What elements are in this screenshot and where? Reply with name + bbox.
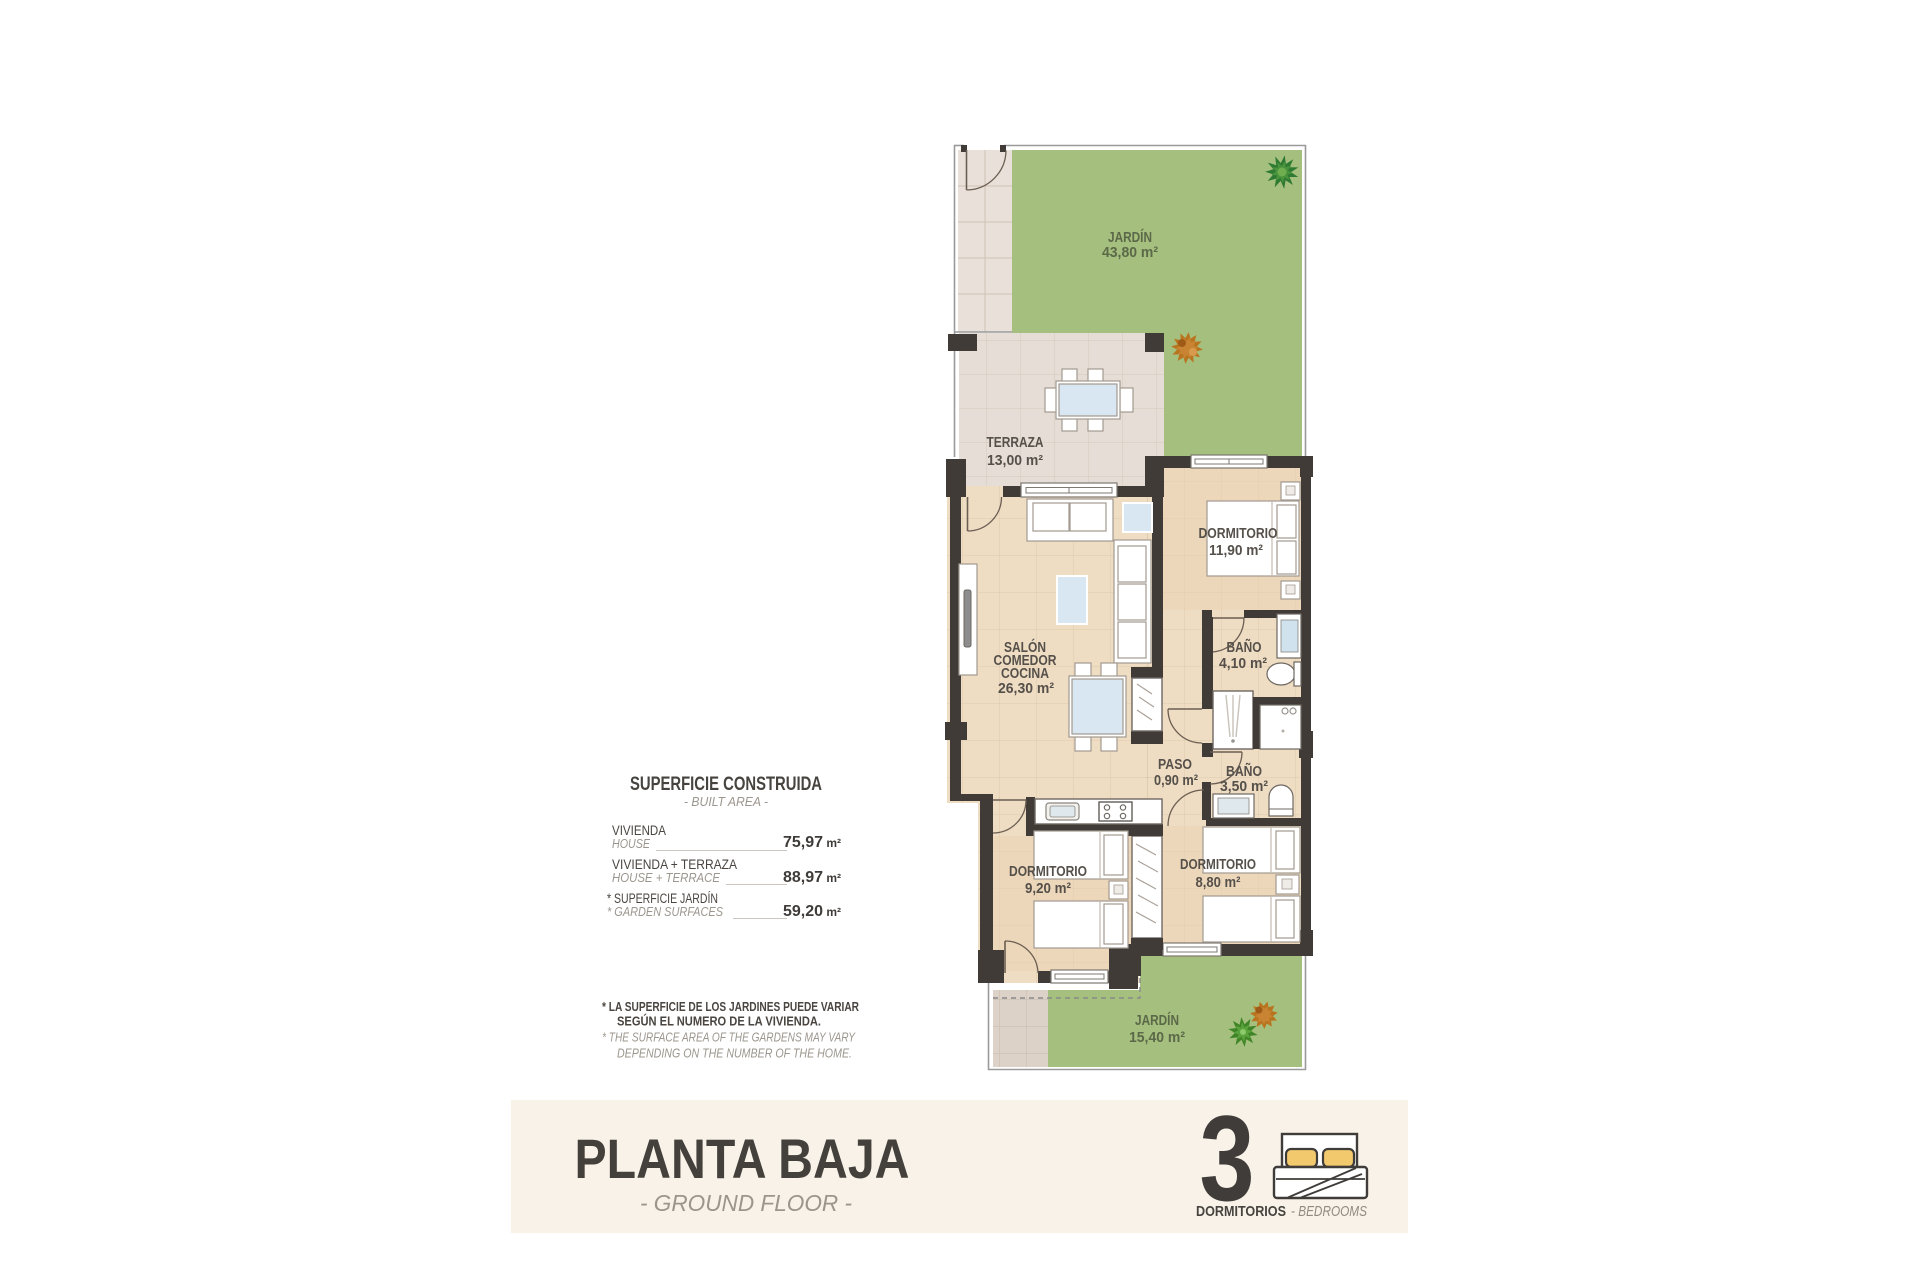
svg-text:PLANTA BAJA: PLANTA BAJA [575, 1127, 910, 1190]
svg-text:15,40 m²: 15,40 m² [1129, 1029, 1185, 1046]
svg-text:PASO: PASO [1158, 757, 1192, 773]
svg-text:8,80 m²: 8,80 m² [1196, 874, 1241, 891]
svg-text:88,97 m²: 88,97 m² [783, 869, 841, 886]
svg-text:75,97 m²: 75,97 m² [783, 834, 841, 851]
svg-text:59,20 m²: 59,20 m² [783, 903, 841, 920]
svg-text:26,30 m²: 26,30 m² [998, 680, 1054, 697]
svg-text:4,10 m²: 4,10 m² [1219, 655, 1267, 672]
svg-text:0,90 m²: 0,90 m² [1154, 772, 1198, 789]
svg-text:DORMITORIO: DORMITORIO [1199, 526, 1278, 542]
svg-text:* GARDEN SURFACES: * GARDEN SURFACES [607, 905, 724, 919]
svg-text:BAÑO: BAÑO [1227, 638, 1262, 656]
svg-text:HOUSE: HOUSE [612, 837, 651, 851]
svg-text:DORMITORIO: DORMITORIO [1180, 857, 1256, 873]
svg-text:HOUSE + TERRACE: HOUSE + TERRACE [612, 871, 721, 885]
svg-text:- GROUND FLOOR -: - GROUND FLOOR - [640, 1190, 852, 1216]
svg-text:SEGÚN EL NUMERO DE LA VIVIENDA: SEGÚN EL NUMERO DE LA VIVIENDA. [617, 1014, 821, 1029]
svg-text:JARDÍN: JARDÍN [1135, 1012, 1179, 1029]
svg-text:DEPENDING ON THE NUMBER OF THE: DEPENDING ON THE NUMBER OF THE HOME. [617, 1046, 852, 1061]
svg-text:3,50 m²: 3,50 m² [1220, 778, 1268, 795]
svg-text:13,00 m²: 13,00 m² [987, 453, 1043, 469]
svg-text:DORMITORIO: DORMITORIO [1009, 864, 1087, 880]
svg-text:TERRAZA: TERRAZA [987, 435, 1044, 451]
svg-text:VIVIENDA + TERRAZA: VIVIENDA + TERRAZA [612, 857, 737, 872]
svg-text:* LA SUPERFICIE DE LOS JARDINE: * LA SUPERFICIE DE LOS JARDINES PUEDE VA… [602, 999, 859, 1014]
svg-text:9,20 m²: 9,20 m² [1025, 880, 1071, 897]
svg-text:VIVIENDA: VIVIENDA [612, 823, 666, 838]
svg-text:- BUILT AREA -: - BUILT AREA - [684, 794, 769, 809]
svg-text:- BEDROOMS: - BEDROOMS [1291, 1203, 1367, 1220]
svg-text:SUPERFICIE CONSTRUIDA: SUPERFICIE CONSTRUIDA [630, 774, 822, 795]
svg-text:* SUPERFICIE JARDÍN: * SUPERFICIE JARDÍN [607, 891, 718, 906]
svg-text:11,90 m²: 11,90 m² [1209, 542, 1263, 559]
svg-text:DORMITORIOS: DORMITORIOS [1196, 1203, 1286, 1220]
svg-text:* THE SURFACE AREA OF THE GARD: * THE SURFACE AREA OF THE GARDENS MAY VA… [602, 1030, 856, 1045]
svg-text:43,80 m²: 43,80 m² [1102, 244, 1158, 261]
